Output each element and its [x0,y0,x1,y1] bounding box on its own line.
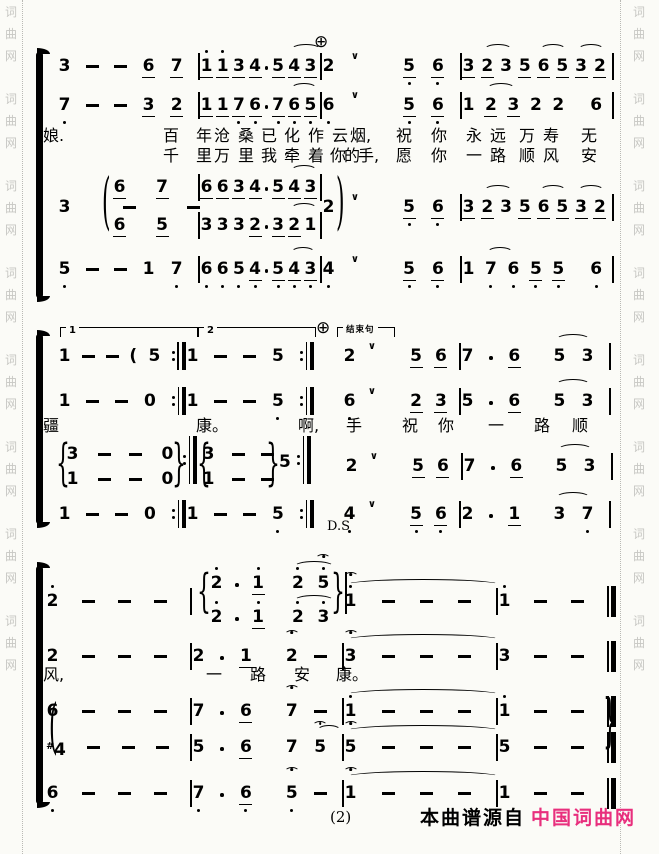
watermark-char: 词 [5,528,17,541]
octave-dot-below [431,223,444,226]
measure: 10 [58,503,186,529]
chord-brace: ( [49,700,58,760]
note: 2 [593,196,606,219]
measure: 6 [46,782,192,808]
spacer [388,503,398,504]
watermark-char: 词 [633,267,645,280]
watermark-char: 网 [5,224,17,237]
note: 5 [304,94,317,117]
system-brace [36,566,43,804]
watermark-char: 词 [633,354,645,367]
slur-arc [317,725,341,736]
barline [612,256,614,283]
measure: 65 [113,214,200,240]
page-number: (2) [330,808,351,826]
measure [314,390,343,416]
dot-of-dotted-note [489,356,493,360]
note: 6 [590,258,603,280]
measure: 6∨56 [322,94,462,120]
watermark-char: 曲 [633,115,645,128]
slur-arc [556,379,590,390]
note: 6 [239,782,252,805]
measure: 367 [58,55,200,81]
note: 5 [553,390,566,412]
measure: 517 [58,258,200,284]
note: 7 [58,94,71,116]
dot-of-dotted-note [220,793,224,797]
note: 3 [272,214,285,237]
lyric-syllable: 你 [431,127,447,145]
spacer [375,55,387,56]
slur-arc [558,444,592,455]
coda-icon: ⊕ [316,320,330,337]
dash-rest [86,400,99,403]
volta-bracket: 1 [60,327,198,337]
note: 1 [344,782,357,804]
dash-rest [534,792,547,795]
note: 3 [581,345,594,367]
note: 2 [593,55,606,78]
dash-rest [243,513,256,516]
chord-brace: ) [336,174,345,236]
watermark-char: 网 [5,311,17,324]
final-barline [607,586,616,617]
dot-of-dotted-note [491,466,495,470]
note: 2 [481,196,494,219]
octave-dot-below [216,285,229,288]
octave-dot-below [403,223,416,226]
watermark-char: 词 [633,180,645,193]
dash-rest [86,65,99,68]
repeat-end-barline [172,500,186,528]
measure: 765 [192,782,344,808]
lyric-syllable: 年 [196,127,212,145]
dash-rest [122,746,135,749]
lyric-syllable: 云 [332,127,348,145]
spacer [574,258,580,259]
fermata-icon [284,685,299,695]
note: 6 [249,94,262,117]
note: 1 [58,390,71,412]
octave-dot-below [322,285,335,288]
lyric-syllable: 一 [466,147,482,165]
watermark-char: 曲 [5,202,17,215]
dot-of-dotted-note [220,747,224,751]
lyric-syllable: 安 [294,666,310,684]
lyric-syllable: 里 [196,147,212,165]
note: 5 [403,55,416,78]
volta-label: 结束句 [343,325,378,336]
note: 5 [314,736,327,758]
octave-dot-below [484,285,497,288]
barline [612,92,614,119]
dot-of-dotted-note [265,105,269,109]
watermark-char: 词 [633,441,645,454]
dash-rest [118,710,131,713]
dash-rest [458,792,471,795]
score-row: 10156∨235653 [58,390,611,416]
note: 2 [46,590,59,612]
spacer [375,94,387,95]
dash-rest [154,710,167,713]
note: 2 [192,645,205,667]
note: 6 [537,55,550,78]
note: 2 [288,214,301,237]
slur-arc [556,334,590,345]
lyric-syllable: 祝 [396,127,412,145]
lyric-syllable: 烟, [350,127,371,145]
note: 3 [507,94,520,117]
note: 5 [556,196,569,219]
dash-rest [214,513,227,516]
chord-brace: } [266,441,280,491]
dash-rest [571,746,584,749]
note: 2 [291,606,304,628]
octave-dot-below [232,285,245,288]
note: 7 [285,736,298,758]
note: 6 [590,94,603,116]
note: 1 [216,55,229,78]
barline [609,388,611,415]
octave-dot-above [216,50,229,53]
dash-rest [86,268,99,271]
dash-rest [458,600,471,603]
lyric-syllable: 万 [214,147,230,165]
note: 4 [288,258,301,281]
score-row: 653332321 [113,214,322,240]
measure: 176556 [462,258,614,284]
lyric-syllable: 路 [250,666,266,684]
watermark-char: 曲 [5,115,17,128]
octave-dot-above [252,567,265,570]
note: 3 [142,94,155,117]
watermark-char: 曲 [5,376,17,389]
measure: 30 [66,443,174,469]
note: 3 [498,645,511,667]
dash-rest [382,655,395,658]
lyric-syllable: 路 [490,147,506,165]
lyric-syllable: 化 [284,127,300,145]
slur-arc [347,579,499,590]
watermark-char: 网 [633,137,645,150]
final-barline [607,641,616,672]
dash-rest [82,792,95,795]
measure: 1176765 [200,94,322,120]
lyric-syllable: 寿 [543,127,559,145]
note: 7 [484,258,497,280]
chord-brace: } [331,571,345,617]
note: 6 [431,196,444,219]
spacer [375,196,387,197]
score-row: 73211767656∨56123226 [58,94,614,120]
note: 6 [431,55,444,78]
note: 6 [508,345,521,368]
measure: 3 [498,645,616,671]
dash-rest [314,792,327,795]
dash-rest [114,104,127,107]
dash-rest [187,206,200,209]
watermark-right: 词曲网词曲网词曲网词曲网词曲网词曲网词曲网词曲网 [629,6,649,702]
note: 6 [431,258,444,281]
watermark-char: 曲 [633,637,645,650]
watermark-char: 曲 [5,463,17,476]
octave-dot-above [498,585,511,588]
score-row: 51766545434∨56176556 [58,258,614,284]
slur-arc [291,83,317,94]
lyric-syllable: 牵 [284,147,300,165]
slur-arc [347,689,499,700]
measure: 4∨56 [343,503,461,529]
slur-arc [347,725,499,736]
dash-rest [98,453,111,456]
octave-dot-below [288,121,301,124]
dash-rest [382,600,395,603]
watermark-char: 网 [633,311,645,324]
slur-arc [556,492,590,503]
spacer [268,782,270,783]
measure: 32356532 [462,55,614,81]
note: 1 [498,782,511,804]
barline [609,343,611,370]
measure: 1 [498,700,616,726]
score-row: 676711 [46,700,616,726]
lyric-syllable: 一 [488,417,504,435]
dash-rest [86,104,99,107]
note: 5 [410,503,423,526]
note: 4 [249,258,262,281]
dash-rest [82,600,95,603]
dash-rest [534,746,547,749]
dot-of-dotted-note [489,401,493,405]
measure: 1134543 [200,55,322,81]
dash-rest [114,268,127,271]
watermark-char: 网 [5,137,17,150]
note: 5 [518,196,531,219]
barline [609,501,611,528]
note: 3 [434,390,447,413]
dash-rest [420,710,433,713]
measure: #4 [46,736,192,762]
measure: 1 [344,700,498,726]
measure: 2123 [210,606,330,632]
note: 7 [461,345,474,367]
lyric-syllable: 远 [490,127,506,145]
octave-dot-below [58,285,71,288]
note: 2 [170,94,183,117]
watermark-char: 词 [633,93,645,106]
dash-rest [118,792,131,795]
breath-mark-icon: ∨ [351,192,359,214]
watermark-char: 词 [5,615,17,628]
note: 3 [581,390,594,412]
note: 2 [343,345,356,367]
dash-rest [129,478,142,481]
dot-of-dotted-note [220,711,224,715]
coda-icon: ⊕ [314,34,328,51]
note: 7 [170,55,183,78]
dash-rest [82,355,95,358]
note: 5 [555,455,568,477]
slur-arc [291,203,317,214]
octave-dot-below [590,285,603,288]
volta-label: 2 [204,325,217,336]
note: 3 [575,55,588,78]
note: 3 [344,645,357,667]
note: 6 [200,258,213,280]
measure: 1 [344,590,498,616]
slur-arc [540,185,566,196]
lyric-syllable: 手 [346,417,362,435]
dash-rest [156,746,169,749]
note: 6 [434,503,447,526]
spacer [277,572,279,573]
dot-of-dotted-note [489,514,493,518]
dash-rest [571,710,584,713]
fermata-icon [284,767,299,777]
lyric-syllable: 你 [438,417,454,435]
watermark-char: 词 [633,528,645,541]
note: 5 [156,214,169,237]
dot-of-dotted-note [265,187,269,191]
watermark-char: 网 [633,485,645,498]
note: 6 [46,782,59,804]
dash-rest [314,655,327,658]
octave-dot-below [403,285,416,288]
slur-arc [484,44,512,55]
system-brace [36,52,43,298]
barline [612,53,614,80]
note: 3 [58,196,71,218]
note: 1 [200,94,213,117]
note: 5 [285,782,298,804]
watermark-char: 曲 [5,637,17,650]
note: 2 [461,503,474,525]
breath-mark-icon: ∨ [368,386,376,408]
volta-label: 1 [66,325,79,336]
note: 1 [186,345,199,367]
dash-rest [382,792,395,795]
watermark-char: 曲 [5,289,17,302]
note: 3 [232,214,245,236]
octave-dot-below [403,82,416,85]
note: 3 [317,606,330,628]
watermark-char: 网 [5,659,17,672]
note: 7 [192,700,205,722]
score-row: 36711345432∨5632356532 [58,55,614,81]
octave-dot-below [200,285,213,288]
watermark-char: 词 [633,615,645,628]
note: 1 [508,503,521,526]
measure: 10 [66,468,174,494]
note: 7 [581,503,594,525]
dot-of-dotted-note [235,617,239,621]
measure: 4∨56 [322,258,462,284]
chord-brace: { [197,571,211,617]
lyric-syllable: 沧 [214,127,230,145]
watermark-char: 曲 [5,550,17,563]
fermata-icon [316,554,331,564]
watermark-char: 词 [5,6,17,19]
measure: 32356532 [462,196,614,222]
slur-arc [484,185,512,196]
dash-rest [232,478,245,481]
note: 2 [46,645,59,667]
paren: ( [129,345,137,367]
barline [320,212,322,239]
note: 2 [481,55,494,78]
watermark-char: 网 [5,398,17,411]
dot-of-dotted-note [235,583,239,587]
octave-dot-below [232,121,245,124]
octave-dot-below [249,285,262,288]
breath-mark-icon: ∨ [370,451,378,473]
note: 1 [200,55,213,78]
note: 6 [436,455,449,478]
lyric-syllable: 着 [308,147,324,165]
watermark-char: 曲 [633,463,645,476]
note: 6 [537,196,550,219]
dash-rest [534,600,547,603]
note: 4 [249,55,262,78]
lyric-syllable: 你 [431,147,447,165]
octave-dot-below [410,530,423,533]
measure: 5 [498,736,616,762]
repeat-end-barline-tall [297,436,311,484]
note: 5 [344,736,357,758]
measure: 15 [186,345,314,371]
repeat-end-barline-tall [183,436,197,484]
octave-dot-below [170,285,183,288]
dash-rest [243,355,256,358]
measure: 2∨56 [345,455,463,481]
lyric-syllable: 顺 [572,417,588,435]
slur-arc [540,44,566,55]
note: 5 [556,55,569,78]
dash-rest [314,710,327,713]
note: 2 [210,606,223,628]
breath-mark-icon: ∨ [368,499,376,521]
breath-mark-icon: ∨ [351,254,359,276]
source-site-link[interactable]: 中国词曲网 [531,803,636,830]
note: 4 [288,55,301,78]
note: 3 [216,214,229,236]
note: 5 [148,345,161,367]
sheet-music-page: 词曲网词曲网词曲网词曲网词曲网词曲网词曲网词曲网 词曲网词曲网词曲网词曲网词曲网… [0,0,659,854]
lyric-syllable: 康。 [336,666,368,684]
measure: 3 [202,443,274,469]
dash-rest [458,710,471,713]
octave-dot-below [249,121,262,124]
dash-rest [123,206,136,209]
dash-rest [154,655,167,658]
spacer [538,455,540,456]
slur-arc [487,83,515,94]
spacer [268,645,270,646]
measure: 123226 [462,94,614,120]
chord-brace: ( [102,174,111,236]
lyric-syllable: 愿 [396,147,412,165]
measure: 2 [46,590,192,616]
dash-rest [534,655,547,658]
lyric-syllable: 一 [206,666,222,684]
spacer [375,258,387,259]
note: 6 [431,94,444,117]
note: 2 [249,214,262,237]
breath-mark-icon: ∨ [368,341,376,363]
note: 5 [192,736,205,758]
lyric-syllable: 路 [534,417,550,435]
measure [314,345,343,371]
